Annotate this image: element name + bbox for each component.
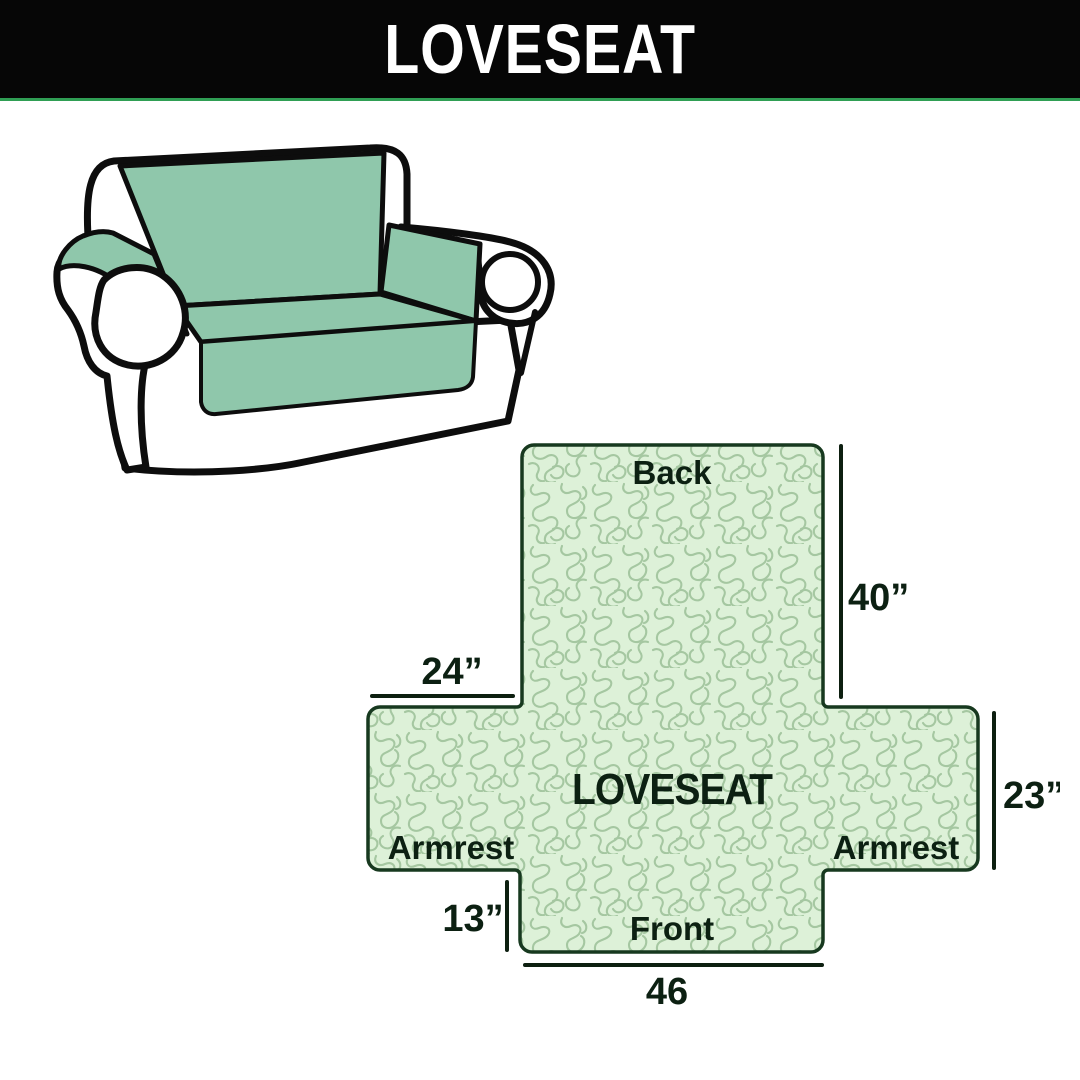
measurement-front-width: 46 <box>646 971 688 1013</box>
measurement-front-drop: 13” <box>442 898 503 940</box>
label-loveseat-center: LOVESEAT <box>572 765 773 814</box>
cover-dimension-diagram: Back LOVESEAT Armrest Armrest Front 40” … <box>340 420 1060 1060</box>
sofa-left-arm-front <box>95 268 186 367</box>
cover-cross-shape <box>368 445 978 952</box>
label-armrest-right: Armrest <box>833 829 960 866</box>
sofa-right-arm-front <box>482 254 538 310</box>
title-banner: LOVESEAT <box>0 0 1080 101</box>
measurement-armrest-width: 24” <box>421 651 482 693</box>
measurement-side-height: 23” <box>1003 775 1060 817</box>
measurement-back-height: 40” <box>848 577 909 619</box>
label-back: Back <box>633 454 713 491</box>
label-armrest-left: Armrest <box>388 829 515 866</box>
label-front: Front <box>630 910 714 947</box>
banner-title-text: LOVESEAT <box>384 9 696 89</box>
